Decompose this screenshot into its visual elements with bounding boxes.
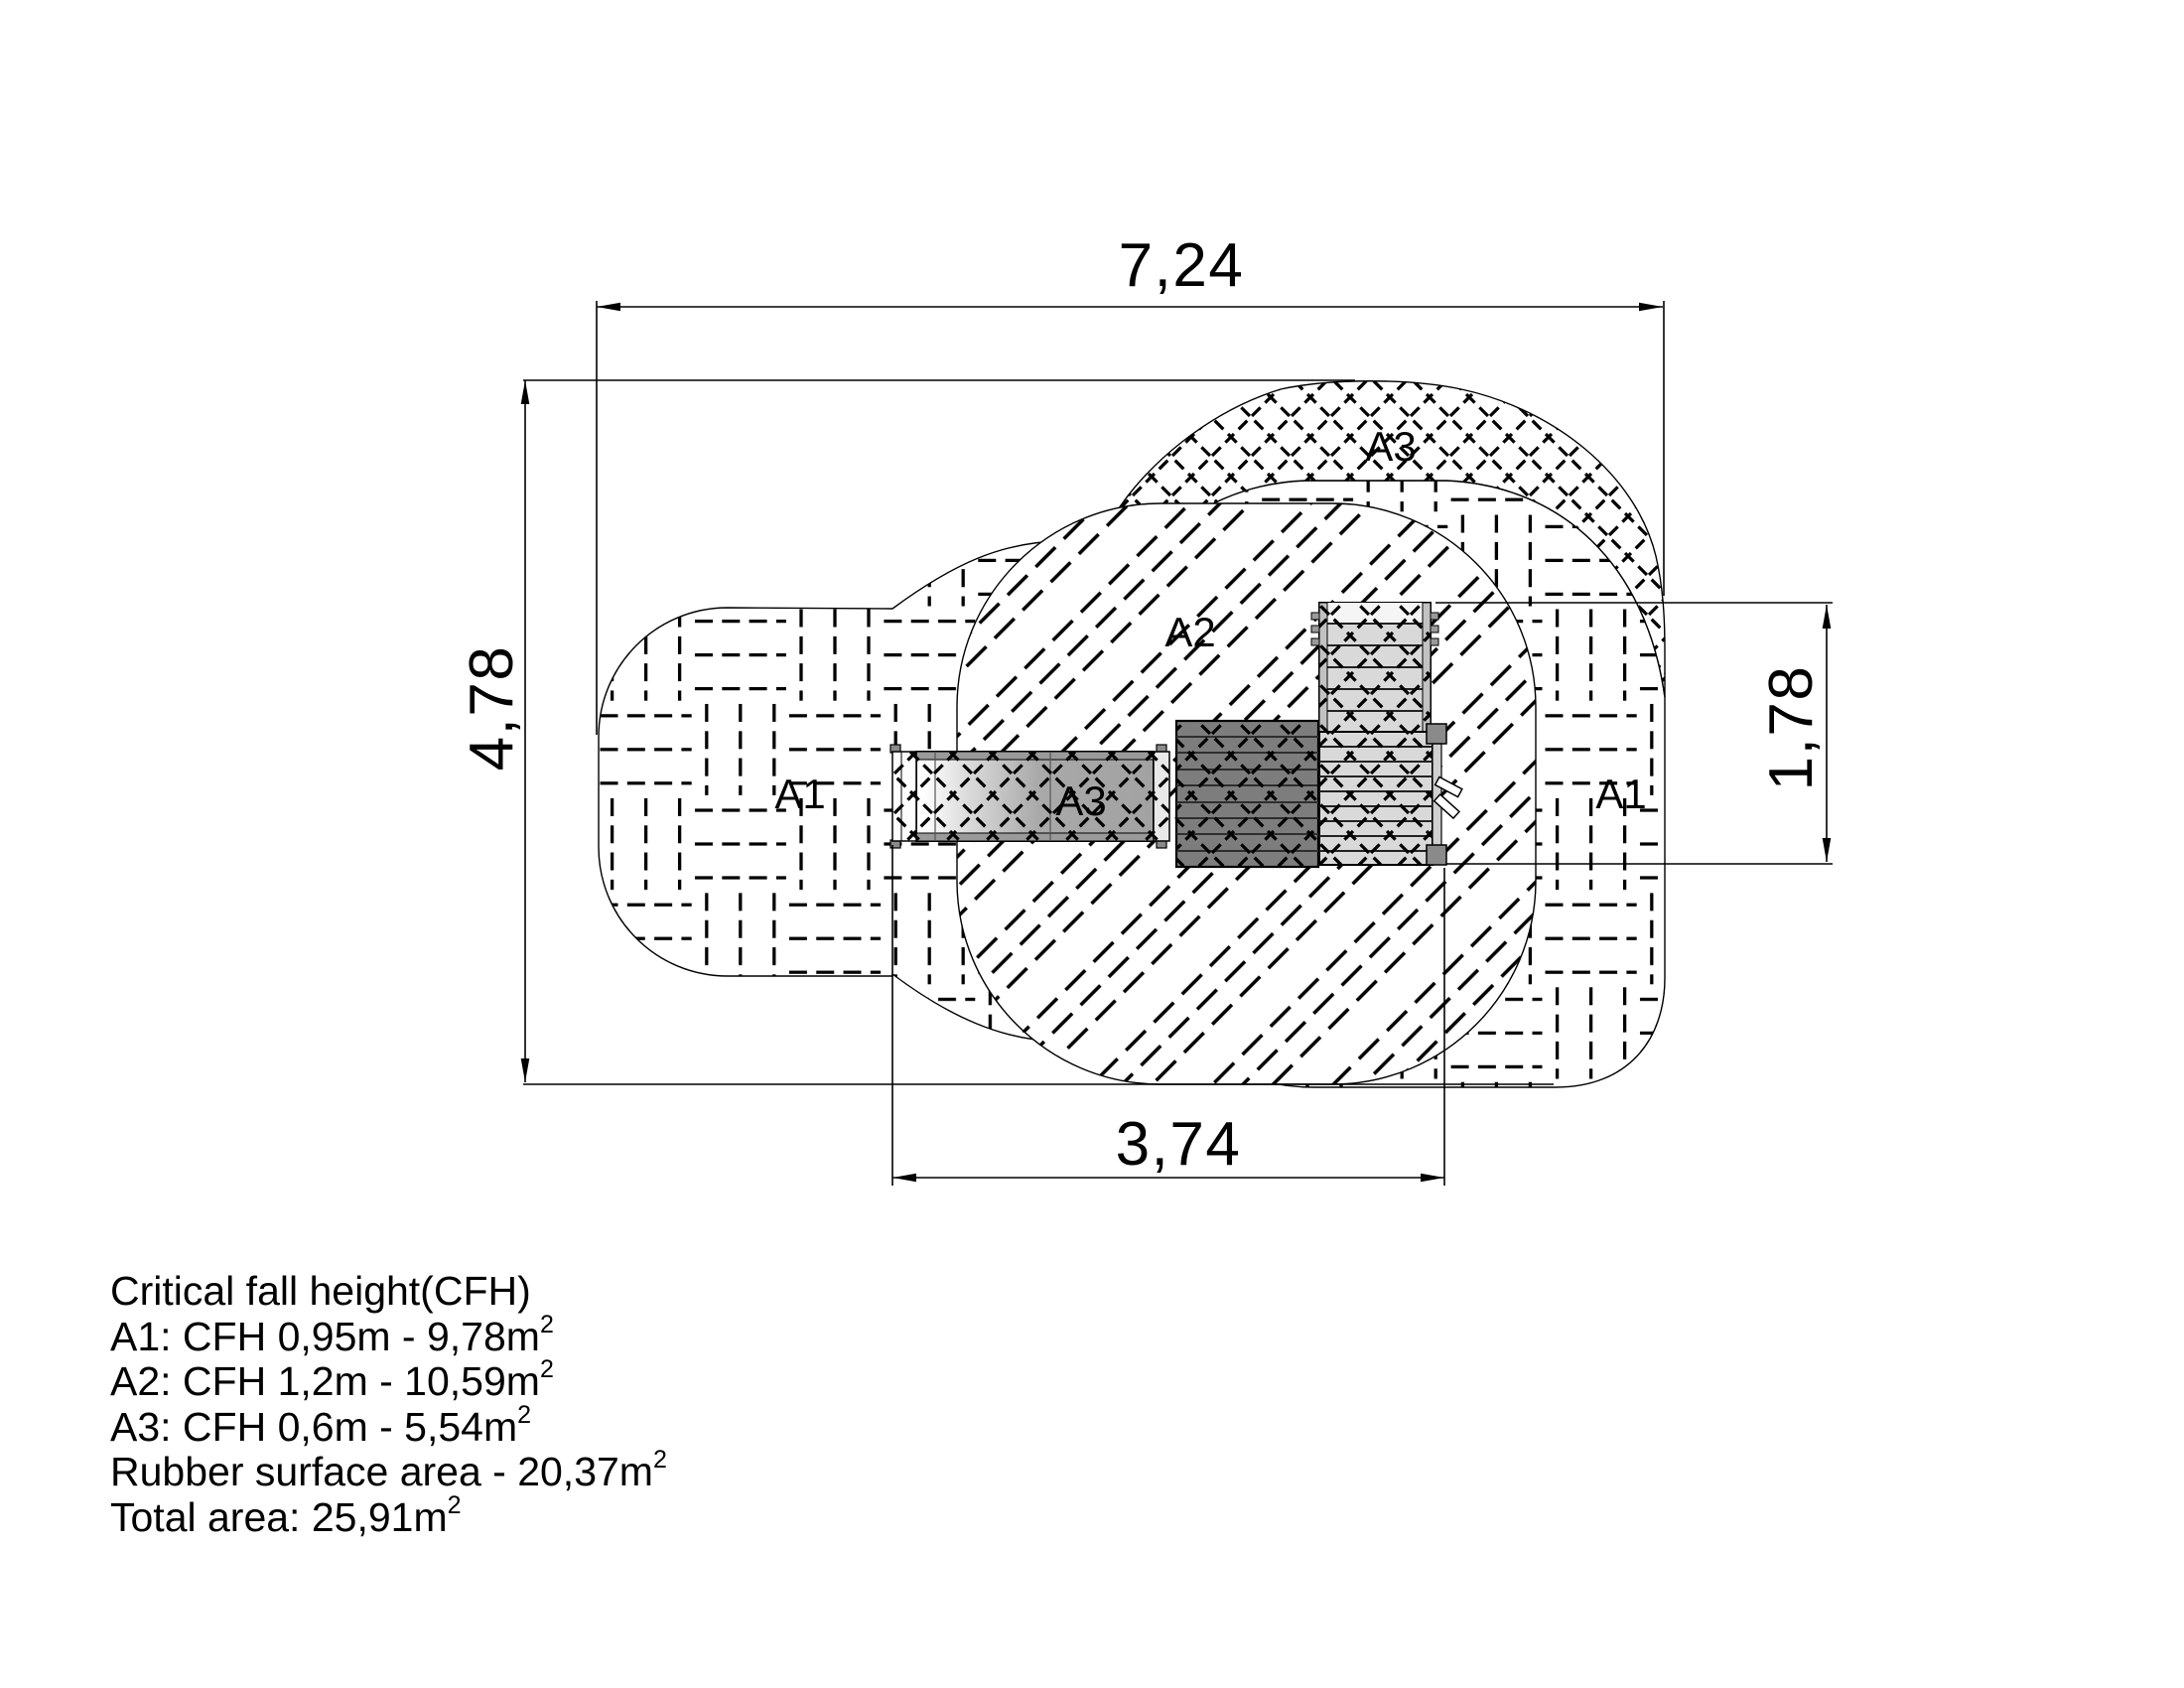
svg-text:3,74: 3,74: [1116, 1110, 1242, 1179]
svg-text:Total area: 25,91m2: Total area: 25,91m2: [110, 1491, 462, 1540]
svg-text:A2: CFH 1,2m - 10,59m2: A2: CFH 1,2m - 10,59m2: [110, 1355, 554, 1404]
svg-text:Critical fall height(CFH): Critical fall height(CFH): [110, 1268, 531, 1314]
svg-text:A2: A2: [1164, 609, 1215, 655]
svg-text:A3: A3: [1055, 777, 1106, 824]
svg-text:4,78: 4,78: [458, 645, 526, 772]
svg-text:7,24: 7,24: [1119, 231, 1245, 300]
svg-text:1,78: 1,78: [1757, 665, 1826, 791]
svg-text:A1: A1: [774, 771, 825, 817]
svg-text:A3: CFH 0,6m - 5,54m2: A3: CFH 0,6m - 5,54m2: [110, 1401, 531, 1450]
svg-text:A1: CFH 0,95m - 9,78m2: A1: CFH 0,95m - 9,78m2: [110, 1311, 554, 1359]
svg-text:A3: A3: [1365, 423, 1416, 470]
svg-text:A1: A1: [1595, 771, 1646, 817]
svg-text:Rubber surface area - 20,37m2: Rubber surface area - 20,37m2: [110, 1446, 667, 1494]
